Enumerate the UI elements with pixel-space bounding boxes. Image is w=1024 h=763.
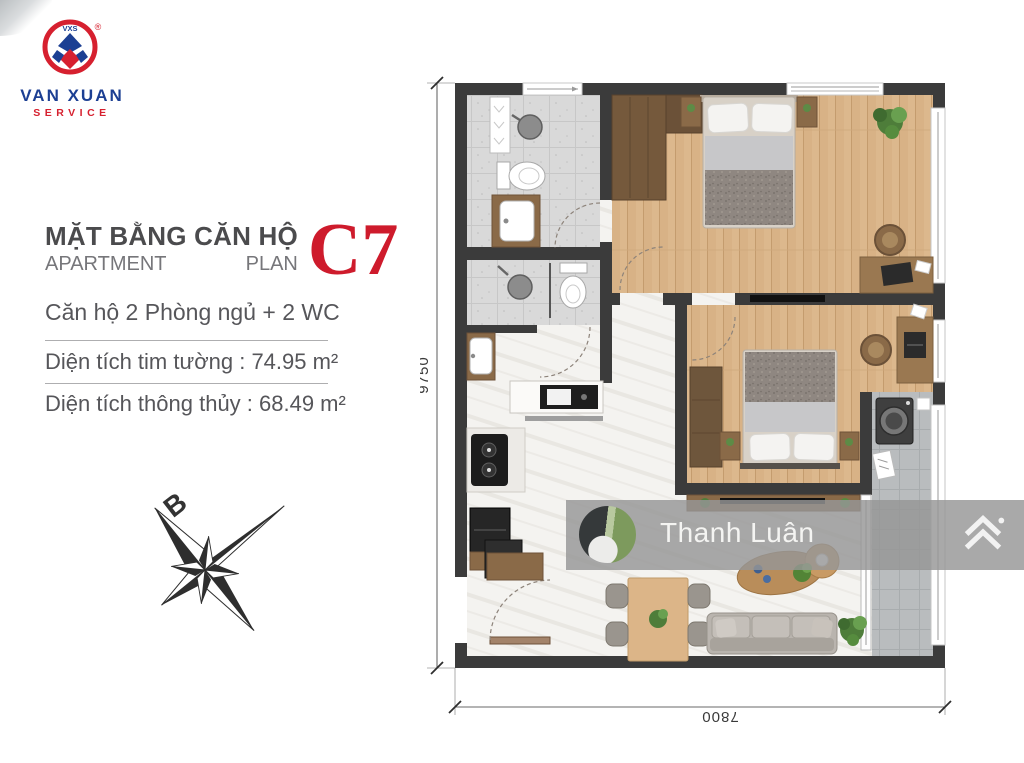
shower-head-2 bbox=[508, 275, 532, 299]
dining-chair bbox=[606, 622, 628, 646]
throw-pillow bbox=[811, 617, 834, 638]
laptop bbox=[881, 262, 913, 286]
kitchen-shelf-line bbox=[525, 416, 603, 421]
shower-head bbox=[518, 115, 542, 139]
balcony-label-tag bbox=[917, 398, 930, 410]
bed-2-blanket bbox=[745, 352, 835, 402]
registered-mark: ® bbox=[95, 22, 102, 32]
floor-plan-drawing: 9750 7800 bbox=[420, 70, 1024, 745]
pillow bbox=[750, 433, 791, 460]
entrance-opening bbox=[455, 577, 467, 643]
brand-service-label: SERVICE bbox=[10, 107, 134, 119]
dimension-label-height: 9750 bbox=[420, 356, 432, 393]
toilet-1 bbox=[509, 162, 545, 190]
unit-code: C7 bbox=[308, 219, 398, 282]
brand-emblem-icon: VXS ® bbox=[41, 16, 103, 78]
dining-chair bbox=[606, 584, 628, 608]
bed-1-sheet bbox=[705, 136, 793, 170]
brand-logo: VXS ® VAN XUAN SERVICE bbox=[10, 16, 134, 119]
dining-chair bbox=[688, 584, 710, 608]
washbasin-nook bbox=[467, 333, 495, 380]
brand-name: VAN XUAN bbox=[10, 86, 134, 106]
pillow bbox=[752, 103, 793, 132]
throw-pillow bbox=[715, 618, 737, 639]
bed-2-sheet bbox=[745, 402, 835, 432]
title-block: MẶT BẰNG CĂN HỘ APARTMENT PLAN C7 bbox=[45, 221, 398, 284]
bed-2-headboard bbox=[740, 463, 840, 469]
compass-rose: B bbox=[118, 472, 318, 672]
tv-wall-mounted bbox=[750, 295, 825, 302]
toilet-tank bbox=[497, 162, 510, 189]
bed-1-blanket bbox=[705, 170, 793, 225]
net-area-row: Diện tích thông thủy : 68.49 m² bbox=[45, 391, 346, 417]
entrance-door-leaf bbox=[490, 637, 550, 644]
floor-plan-page: { "brand": { "monogram": "VXS", "registe… bbox=[0, 0, 1024, 763]
divider-line bbox=[45, 383, 328, 384]
brand-monogram: VXS bbox=[62, 24, 77, 33]
title-en-word-1: APARTMENT bbox=[45, 253, 167, 276]
page-title-en: APARTMENT PLAN bbox=[45, 253, 298, 276]
divider-line bbox=[45, 340, 328, 341]
dimension-label-width: 7800 bbox=[701, 708, 738, 725]
layout-summary: Căn hộ 2 Phòng ngủ + 2 WC bbox=[45, 299, 340, 326]
watermark-name: Thanh Luân bbox=[660, 517, 814, 549]
wardrobe-2 bbox=[690, 367, 722, 467]
house-chevron-icon bbox=[956, 508, 1010, 562]
side-counter bbox=[487, 553, 543, 580]
avatar bbox=[579, 506, 636, 563]
toilet-2-tank bbox=[560, 263, 587, 273]
title-en-word-2: PLAN bbox=[246, 253, 298, 276]
shower-screen bbox=[490, 97, 510, 153]
pillow bbox=[794, 433, 835, 460]
gross-area-row: Diện tích tim tường : 74.95 m² bbox=[45, 349, 338, 375]
watermark-band: Thanh Luân bbox=[566, 500, 1024, 570]
compass-star bbox=[118, 472, 318, 666]
page-title-vi: MẶT BẰNG CĂN HỘ bbox=[45, 221, 298, 252]
cooktop bbox=[471, 434, 508, 486]
window-top-2 bbox=[787, 83, 883, 95]
pillow bbox=[707, 103, 748, 133]
wardrobe-1 bbox=[612, 95, 666, 200]
nightstand bbox=[840, 432, 859, 460]
